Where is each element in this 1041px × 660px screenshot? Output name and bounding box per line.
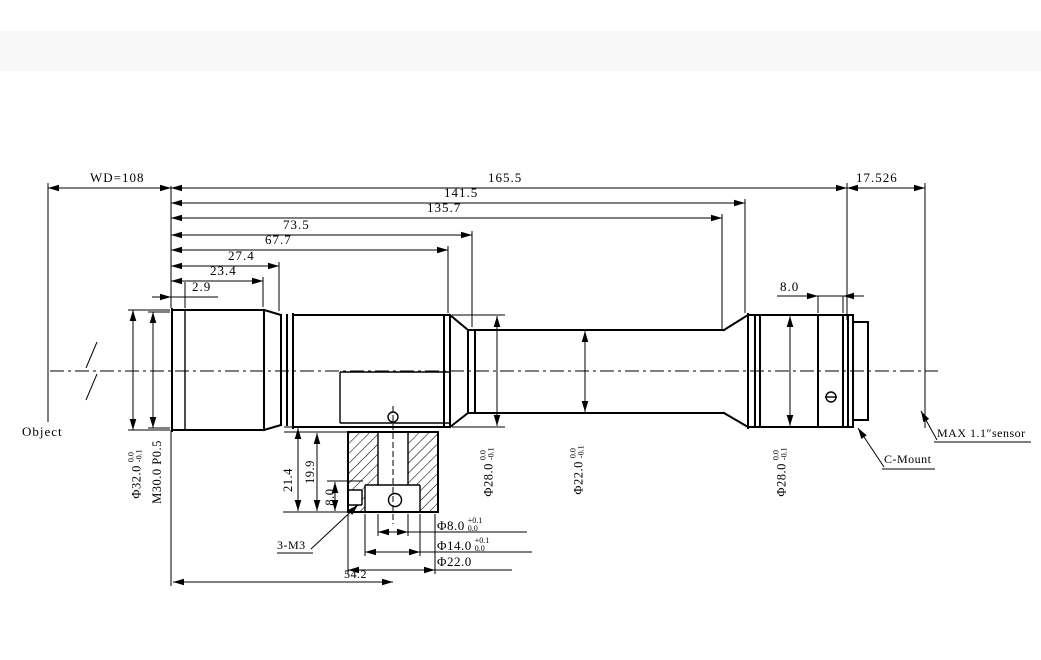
lens-technical-drawing: WD=108 165.5 17.526 141.5 135.7 73.5 67.… xyxy=(0,0,1041,660)
dim-wd: WD=108 xyxy=(90,171,145,184)
object-label: Object xyxy=(22,425,63,438)
dim-135-7: 135.7 xyxy=(427,201,461,214)
front-barrel-od-label: Φ28.0 0.0 -0.1 xyxy=(481,447,496,496)
c-mount-label: C-Mount xyxy=(884,453,932,466)
centerlines xyxy=(50,342,938,524)
m3-hole-notch xyxy=(347,490,362,505)
dim-2-9: 2.9 xyxy=(192,280,211,293)
dim-73-5: 73.5 xyxy=(283,218,310,231)
thread-3m3-label: 3-M3 xyxy=(277,539,306,552)
lens-body-outline xyxy=(172,309,868,512)
rear-barrel-od-value: Φ28.0 xyxy=(775,463,787,497)
dim-67-7: 67.7 xyxy=(265,233,292,246)
counterbore-tolerance: +0.1 0.0 xyxy=(475,537,490,552)
dim-flange-focal: 17.526 xyxy=(856,171,898,184)
dim-8-0-rear: 8.0 xyxy=(780,280,799,293)
counterbore-label: Φ14.0 +0.1 0.0 xyxy=(437,538,489,553)
front-thread-value: M30.0 P0.5 xyxy=(151,440,163,504)
tube-od-value: Φ22.0 xyxy=(572,461,584,495)
tube-od-label: Φ22.0 0.0 -0.1 xyxy=(571,445,586,494)
front-od-value: Φ32.0 xyxy=(130,465,142,499)
front-barrel-od-tolerance: 0.0 -0.1 xyxy=(480,447,495,460)
dimension-lines xyxy=(48,188,925,582)
sensor-label: MAX 1.1″sensor xyxy=(937,427,1026,440)
counterbore-value: Φ14.0 xyxy=(437,539,472,552)
bore-value: Φ8.0 xyxy=(437,519,465,532)
dim-19-9: 19.9 xyxy=(304,460,316,484)
bore-tolerance: +0.1 0.0 xyxy=(468,517,483,532)
rear-barrel-od-label: Φ28.0 0.0 -0.1 xyxy=(774,447,789,496)
tube-od-tolerance: 0.0 -0.1 xyxy=(570,445,585,458)
dim-54-2: 54.2 xyxy=(344,568,367,581)
rear-barrel-od-tolerance: 0.0 -0.1 xyxy=(773,447,788,460)
dim-141-5: 141.5 xyxy=(444,186,478,199)
front-od-label: Φ32.0 0.0 -0.1 xyxy=(129,449,144,498)
dim-27-4: 27.4 xyxy=(228,249,255,262)
dim-21-4: 21.4 xyxy=(282,468,294,492)
dim-total-length: 165.5 xyxy=(488,171,522,184)
bore-label: Φ8.0 +0.1 0.0 xyxy=(437,518,482,533)
mount-od-value: Φ22.0 xyxy=(437,555,472,568)
extension-lines xyxy=(48,183,925,586)
mount-od-label: Φ22.0 xyxy=(437,555,472,568)
rear-set-screw-icon xyxy=(825,392,837,402)
drawing-canvas xyxy=(0,0,1041,660)
front-thread-label: M30.0 P0.5 xyxy=(151,440,163,504)
front-od-tolerance: 0.0 -0.1 xyxy=(128,449,143,462)
cross-hole-icon xyxy=(389,494,402,507)
dim-8-0-depth: 8.0 xyxy=(324,488,336,505)
front-barrel-od-value: Φ28.0 xyxy=(482,463,494,497)
dim-23-4: 23.4 xyxy=(210,264,237,277)
